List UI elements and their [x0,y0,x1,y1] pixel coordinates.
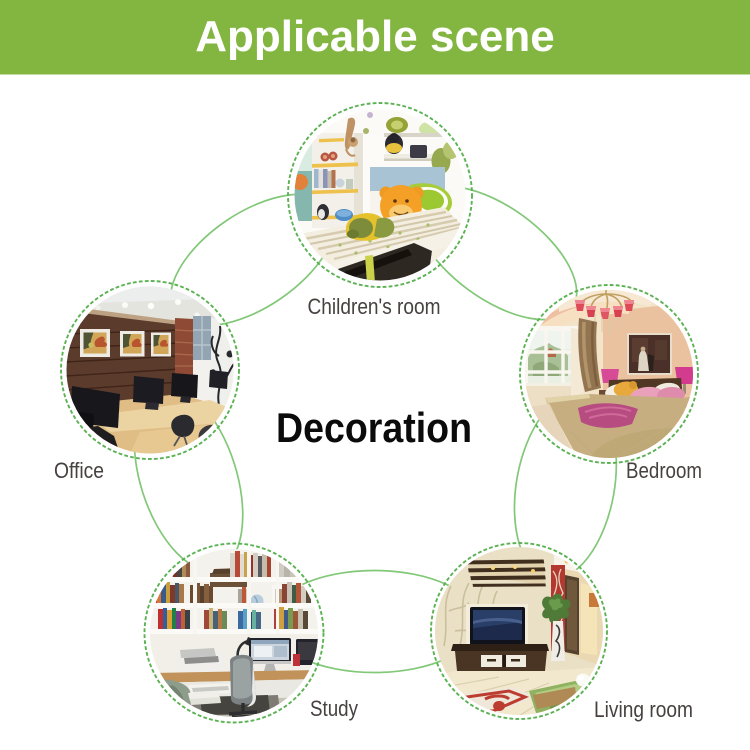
svg-text:Bedroom: Bedroom [626,458,702,483]
svg-text:Office: Office [54,458,104,483]
svg-text:Study: Study [310,696,358,721]
svg-text:Children's room: Children's room [308,294,441,319]
svg-text:Living room: Living room [594,697,693,722]
svg-text:Applicable scene: Applicable scene [195,12,554,61]
svg-text:Decoration: Decoration [276,404,472,451]
